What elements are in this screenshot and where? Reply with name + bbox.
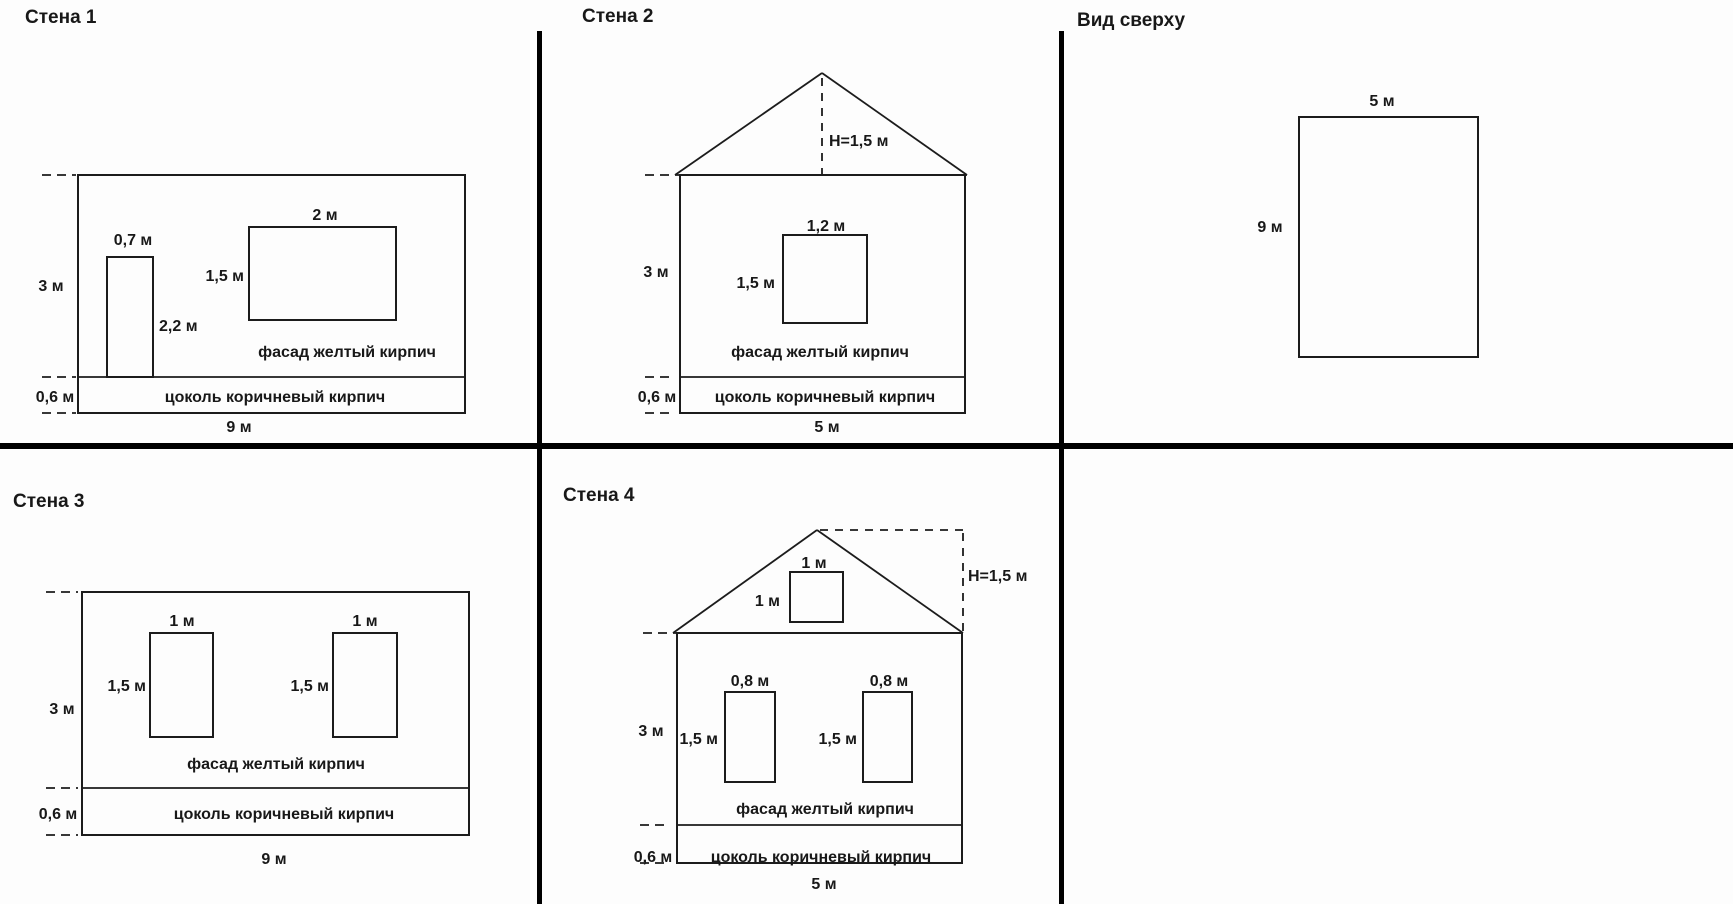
wall4-roof-left-slope [673,530,817,633]
top-view-depth-label: 9 м [1257,219,1282,236]
wall2-plinth-label: цоколь коричневый кирпич [715,389,935,406]
wall1-plinth-height-label: 0,6 м [36,389,75,406]
top-view-width-label: 5 м [1369,93,1394,110]
wall4-plinth-height-label: 0,6 м [634,849,673,866]
wall3-window-2 [333,633,397,737]
wall4-attic-height-label: 1 м [755,593,780,610]
wall4-window2-width-label: 0,8 м [870,673,909,690]
wall2-width-label: 5 м [814,419,839,436]
empty-panel [1064,449,1733,904]
wall1-window [249,227,396,320]
wall1-window-height-label: 1,5 м [205,268,244,285]
wall4-height-label: 3 м [638,723,663,740]
top-view-drawing: Вид сверху 5 м 9 м [1060,0,1733,443]
wall2-roof-height-label: H=1,5 м [829,133,888,150]
wall1-facade-label: фасад желтый кирпич [258,344,436,361]
wall3-window-1 [150,633,213,737]
wall4-roof-right-slope [817,530,963,633]
wall4-drawing: Стена 4 1 м 1 м H=1,5 м 0,8 м 0,8 м 1,5 … [537,449,1060,904]
wall3-outline [82,592,469,835]
wall3-plinth-height-label: 0,6 м [39,806,78,823]
wall4-window-2 [863,692,912,782]
sketch-sheet: Стена 1 0,7 м 2,2 м 2 м 1,5 м 3 м фасад … [0,0,1733,904]
wall1-width-label: 9 м [226,419,251,436]
wall4-window-1 [725,692,775,782]
top-view-outline [1299,117,1478,357]
wall4-plinth-label: цоколь коричневый кирпич [711,849,931,866]
wall1-door-height-label: 2,2 м [159,318,198,335]
wall3-title: Стена 3 [13,491,84,512]
wall1-height-label: 3 м [38,278,63,295]
wall4-outline [677,633,962,863]
wall2-height-label: 3 м [643,264,668,281]
wall2-roof-left-slope [675,73,822,175]
wall3-window2-width-label: 1 м [352,613,377,630]
wall1-window-width-label: 2 м [312,207,337,224]
wall4-roof-height-label: H=1,5 м [968,568,1027,585]
wall3-height-label: 3 м [49,701,74,718]
wall3-window1-width-label: 1 м [169,613,194,630]
wall4-facade-label: фасад желтый кирпич [736,801,914,818]
wall2-window [783,235,867,323]
top-view-title: Вид сверху [1077,10,1185,31]
wall4-title: Стена 4 [563,485,635,506]
wall3-window2-height-label: 1,5 м [290,678,329,695]
wall4-window1-width-label: 0,8 м [731,673,770,690]
wall1-door [107,257,153,377]
wall1-plinth-label: цоколь коричневый кирпич [165,389,385,406]
wall3-width-label: 9 м [261,851,286,868]
wall4-attic-window [790,572,843,622]
wall4-width-label: 5 м [811,876,836,893]
wall1-drawing: Стена 1 0,7 м 2,2 м 2 м 1,5 м 3 м фасад … [0,0,537,443]
wall3-drawing: Стена 3 1 м 1 м 1,5 м 1,5 м 3 м фасад же… [0,449,537,904]
wall2-window-height-label: 1,5 м [736,275,775,292]
wall1-door-width-label: 0,7 м [114,232,153,249]
wall3-window1-height-label: 1,5 м [107,678,146,695]
wall2-facade-label: фасад желтый кирпич [731,344,909,361]
wall2-drawing: Стена 2 H=1,5 м 1,2 м 1,5 м 3 м фасад же… [537,0,1060,443]
wall4-window1-height-label: 1,5 м [679,731,718,748]
wall2-title: Стена 2 [582,6,653,27]
wall4-window2-height-label: 1,5 м [818,731,857,748]
wall3-facade-label: фасад желтый кирпич [187,756,365,773]
wall2-window-width-label: 1,2 м [807,218,846,235]
wall3-plinth-label: цоколь коричневый кирпич [174,806,394,823]
wall1-title: Стена 1 [25,7,97,28]
wall2-plinth-height-label: 0,6 м [638,389,677,406]
wall2-roof-right-slope [822,73,967,175]
wall4-attic-width-label: 1 м [801,555,826,572]
